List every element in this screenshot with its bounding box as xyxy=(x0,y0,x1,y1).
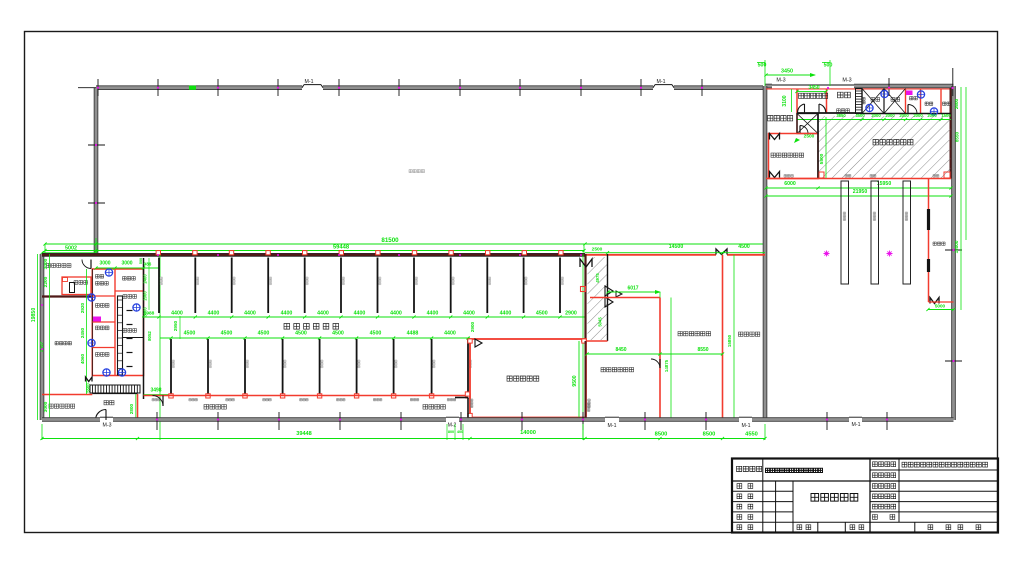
svg-text:2900: 2900 xyxy=(470,321,475,332)
svg-text:3450: 3450 xyxy=(808,85,819,91)
svg-text:4400: 4400 xyxy=(317,311,329,317)
svg-text:5002: 5002 xyxy=(65,246,77,252)
svg-text:800: 800 xyxy=(448,430,454,434)
svg-text:M-1: M-1 xyxy=(852,422,861,428)
svg-text:M-1: M-1 xyxy=(305,79,314,85)
svg-text:21950: 21950 xyxy=(853,189,868,195)
svg-text:81500: 81500 xyxy=(381,237,399,244)
svg-text:8550: 8550 xyxy=(955,131,960,142)
svg-text:M-1: M-1 xyxy=(742,423,751,429)
svg-text:1988: 1988 xyxy=(144,311,155,317)
svg-text:4500: 4500 xyxy=(332,331,344,337)
svg-text:M-1: M-1 xyxy=(657,79,666,85)
svg-text:2600: 2600 xyxy=(954,98,959,109)
svg-text:8052: 8052 xyxy=(147,331,152,341)
svg-text:4500: 4500 xyxy=(295,331,307,337)
svg-text:500: 500 xyxy=(824,63,833,69)
svg-text:4400: 4400 xyxy=(390,311,402,317)
svg-text:4400: 4400 xyxy=(208,311,220,317)
svg-text:39448: 39448 xyxy=(296,431,312,437)
svg-text:4400: 4400 xyxy=(244,311,256,317)
svg-text:5500: 5500 xyxy=(86,383,91,393)
svg-text:8500: 8500 xyxy=(655,432,668,438)
svg-text:4400: 4400 xyxy=(500,311,512,317)
svg-text:8450: 8450 xyxy=(615,347,626,353)
svg-text:986: 986 xyxy=(144,262,152,267)
svg-text:M-1: M-1 xyxy=(608,423,617,429)
svg-text:4400: 4400 xyxy=(444,331,456,337)
svg-text:4400: 4400 xyxy=(281,311,293,317)
svg-text:8550: 8550 xyxy=(697,347,708,353)
svg-text:3100: 3100 xyxy=(782,95,788,106)
svg-text:4060: 4060 xyxy=(80,353,85,364)
svg-text:6017: 6017 xyxy=(627,286,638,292)
svg-text:400: 400 xyxy=(457,430,463,434)
svg-text:2950: 2950 xyxy=(173,320,178,331)
svg-text:14500: 14500 xyxy=(669,244,684,250)
svg-text:4500: 4500 xyxy=(370,331,382,337)
svg-text:5500: 5500 xyxy=(819,153,825,164)
svg-text:2200: 2200 xyxy=(43,276,49,287)
svg-text:4550: 4550 xyxy=(745,432,758,438)
svg-text:8500: 8500 xyxy=(703,432,716,438)
svg-text:4400: 4400 xyxy=(171,311,183,317)
svg-text:2500: 2500 xyxy=(804,134,815,140)
svg-text:4500: 4500 xyxy=(536,311,548,317)
svg-text:M-3: M-3 xyxy=(776,78,785,84)
svg-text:3000: 3000 xyxy=(43,401,49,412)
svg-text:9500: 9500 xyxy=(572,375,578,386)
svg-text:14000: 14000 xyxy=(520,430,536,436)
svg-text:19850: 19850 xyxy=(31,308,37,323)
svg-text:M-3: M-3 xyxy=(842,78,851,84)
svg-text:2920: 2920 xyxy=(80,302,85,313)
svg-text:1647: 1647 xyxy=(39,341,45,352)
svg-text:500: 500 xyxy=(139,258,143,264)
svg-text:2500: 2500 xyxy=(592,247,603,253)
svg-text:4500: 4500 xyxy=(184,331,196,337)
svg-text:2800: 2800 xyxy=(129,403,134,414)
svg-text:4975: 4975 xyxy=(595,273,600,283)
svg-text:3000: 3000 xyxy=(99,261,110,267)
svg-text:14875: 14875 xyxy=(664,359,669,372)
svg-text:3450: 3450 xyxy=(781,69,793,75)
svg-text:4500: 4500 xyxy=(258,331,270,337)
svg-text:15850: 15850 xyxy=(727,334,732,347)
svg-text:2400: 2400 xyxy=(143,274,148,284)
svg-text:4400: 4400 xyxy=(354,311,366,317)
svg-text:6000: 6000 xyxy=(784,181,796,187)
svg-text:2900: 2900 xyxy=(565,311,577,317)
svg-text:2000: 2000 xyxy=(143,291,148,301)
svg-text:4500: 4500 xyxy=(738,244,750,250)
svg-text:3000: 3000 xyxy=(121,261,132,267)
svg-text:M-3: M-3 xyxy=(103,423,112,429)
svg-text:3498: 3498 xyxy=(150,388,161,394)
svg-text:15000: 15000 xyxy=(954,240,959,253)
svg-text:5000: 5000 xyxy=(935,304,946,309)
svg-text:4488: 4488 xyxy=(407,331,419,337)
svg-text:2450: 2450 xyxy=(80,327,85,338)
svg-text:4400: 4400 xyxy=(427,311,439,317)
svg-text:59448: 59448 xyxy=(333,245,350,251)
svg-text:5045: 5045 xyxy=(598,317,603,327)
svg-text:3000: 3000 xyxy=(43,258,49,269)
svg-text:4500: 4500 xyxy=(221,331,233,337)
svg-text:4400: 4400 xyxy=(463,311,475,317)
